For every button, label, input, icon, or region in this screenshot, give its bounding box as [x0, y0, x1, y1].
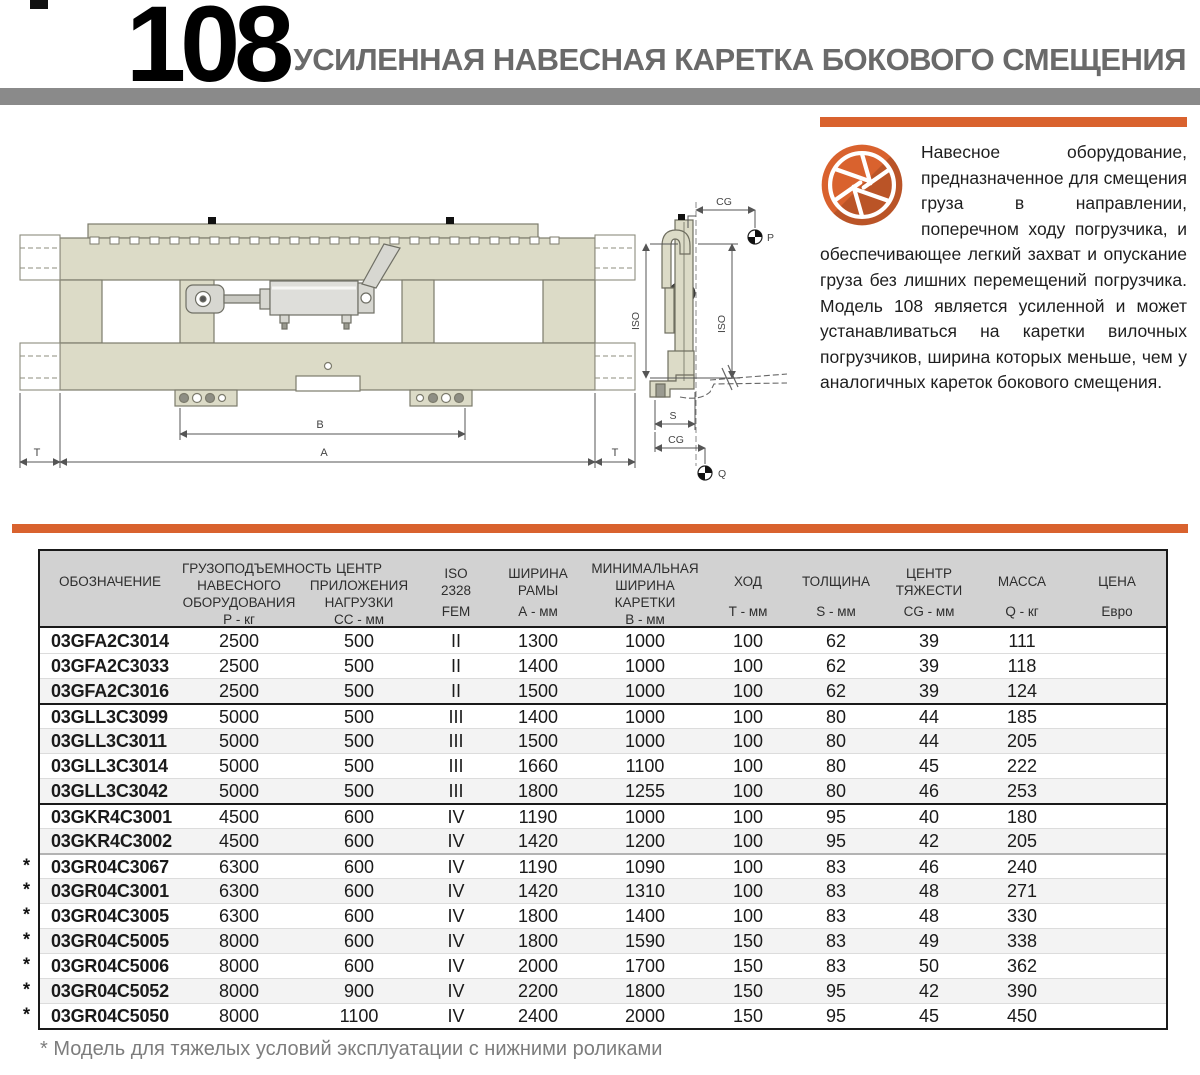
table-row: *03GR04C30676300600IV119010901008346240 — [40, 853, 1166, 878]
table-cell: III — [420, 729, 492, 753]
table-cell: III — [420, 754, 492, 778]
table-cell: 39 — [882, 654, 976, 678]
table-row: *03GR04C50528000900IV220018001509542390 — [40, 978, 1166, 1003]
table-row: *03GR04C50068000600IV200017001508350362 — [40, 953, 1166, 978]
table-cell: 45 — [882, 754, 976, 778]
dim-label-s: S — [669, 410, 676, 422]
page-number: 108 — [126, 0, 288, 98]
table-cell: 1190 — [492, 855, 584, 879]
table-cell: 100 — [706, 879, 790, 903]
cell-designation: 03GKR4C3001 — [40, 805, 180, 829]
table-cell: 150 — [706, 979, 790, 1003]
table-cell: 2400 — [492, 1004, 584, 1028]
table-cell: 49 — [882, 929, 976, 953]
table-cell: 271 — [976, 879, 1068, 903]
table-cell: 95 — [790, 829, 882, 853]
table-cell: 80 — [790, 729, 882, 753]
cell-designation: 03GR04C3001 — [40, 879, 180, 903]
table-cell: 100 — [706, 629, 790, 653]
side-view: CG ISO ISO S CG P Q — [630, 196, 787, 480]
cell-designation: 03GLL3C3011 — [40, 729, 180, 753]
column-header: ТОЛЩИНАS - мм — [790, 551, 882, 628]
table-cell: 39 — [882, 629, 976, 653]
table-row: 03GLL3C30995000500III140010001008044185 — [40, 703, 1166, 728]
footnote-text: Модель для тяжелых условий эксплуатации … — [53, 1038, 662, 1060]
table-cell: 2500 — [180, 679, 298, 703]
heavy-duty-star-marker: * — [23, 1005, 30, 1026]
column-header: ЦЕНАЕвро — [1068, 551, 1166, 628]
table-row: *03GR04C30016300600IV142013101008348271 — [40, 878, 1166, 903]
table-cell: 1310 — [584, 879, 706, 903]
column-header: ГРУЗОПОДЪЕМНОСТЬНАВЕСНОГО ОБОРУДОВАНИЯР … — [180, 551, 298, 628]
cell-designation: 03GLL3C3042 — [40, 779, 180, 803]
dim-label-iso-right: ISO — [716, 315, 728, 333]
table-row: 03GLL3C30425000500III180012551008046253 — [40, 778, 1166, 803]
header-divider-bar — [0, 88, 1200, 105]
table-cell: 1590 — [584, 929, 706, 953]
table-cell: 80 — [790, 754, 882, 778]
table-cell: 205 — [976, 829, 1068, 853]
intro-paragraph: Навесное оборудование, предназначенное д… — [820, 140, 1187, 396]
table-cell: II — [420, 679, 492, 703]
dim-label-cg-top: CG — [716, 196, 732, 208]
table-cell: 8000 — [180, 979, 298, 1003]
table-cell: 62 — [790, 679, 882, 703]
table-cell: 600 — [298, 954, 420, 978]
table-cell: 2500 — [180, 654, 298, 678]
intro-section: Навесное оборудование, предназначенное д… — [820, 117, 1187, 396]
cell-designation: 03GFA2C3016 — [40, 679, 180, 703]
table-cell: 1660 — [492, 754, 584, 778]
table-cell: IV — [420, 904, 492, 928]
heavy-duty-star-marker: * — [23, 855, 30, 876]
table-cell: II — [420, 629, 492, 653]
spec-table-body: 03GFA2C30142500500II13001000100623911103… — [40, 628, 1166, 1028]
table-cell: 150 — [706, 929, 790, 953]
cell-designation: 03GLL3C3014 — [40, 754, 180, 778]
table-cell: II — [420, 654, 492, 678]
table-cell: 83 — [790, 929, 882, 953]
cell-designation: 03GR04C5052 — [40, 979, 180, 1003]
table-cell: 1800 — [492, 929, 584, 953]
table-cell: 2200 — [492, 979, 584, 1003]
dim-label-cg-bottom: CG — [668, 434, 684, 446]
table-cell: 111 — [976, 629, 1068, 653]
table-cell: 100 — [706, 754, 790, 778]
table-row: 03GFA2C30162500500II150010001006239124 — [40, 678, 1166, 703]
table-cell: 8000 — [180, 954, 298, 978]
dim-label-b: B — [316, 419, 323, 431]
column-header: МИНИМАЛЬНАЯШИРИНА КАРЕТКИВ - мм — [584, 551, 706, 628]
table-cell: 4500 — [180, 805, 298, 829]
table-cell: 500 — [298, 729, 420, 753]
cell-designation: 03GR04C3005 — [40, 904, 180, 928]
table-cell: 2000 — [492, 954, 584, 978]
table-cell: 253 — [976, 779, 1068, 803]
table-row: 03GKR4C30024500600IV142012001009542205 — [40, 828, 1166, 853]
table-cell: 1400 — [492, 654, 584, 678]
table-cell: 338 — [976, 929, 1068, 953]
table-cell: 1090 — [584, 855, 706, 879]
table-cell: 1500 — [492, 679, 584, 703]
dim-label-a: A — [320, 447, 328, 459]
page-corner-mark — [30, 0, 48, 9]
table-cell: 6300 — [180, 879, 298, 903]
table-cell: IV — [420, 1004, 492, 1028]
table-cell: 500 — [298, 705, 420, 729]
table-cell: 1100 — [298, 1004, 420, 1028]
table-cell: 100 — [706, 729, 790, 753]
cell-designation: 03GKR4C3002 — [40, 829, 180, 853]
table-cell: 42 — [882, 829, 976, 853]
front-view: B A T T — [20, 217, 635, 468]
table-cell: 124 — [976, 679, 1068, 703]
heavy-duty-star-marker: * — [23, 905, 30, 926]
table-cell: III — [420, 779, 492, 803]
table-cell: 5000 — [180, 779, 298, 803]
table-cell: 118 — [976, 654, 1068, 678]
heavy-duty-star-marker: * — [23, 880, 30, 901]
dim-label-iso-left: ISO — [630, 312, 642, 330]
table-cell: 500 — [298, 754, 420, 778]
table-cell: 44 — [882, 705, 976, 729]
table-row: 03GLL3C30115000500III150010001008044205 — [40, 728, 1166, 753]
table-row: *03GR04C50058000600IV180015901508349338 — [40, 928, 1166, 953]
table-cell: 48 — [882, 904, 976, 928]
cell-designation: 03GFA2C3014 — [40, 629, 180, 653]
table-cell: 100 — [706, 904, 790, 928]
table-cell: 1000 — [584, 705, 706, 729]
cell-designation: 03GR04C5006 — [40, 954, 180, 978]
table-row: *03GR04C505080001100IV240020001509545450 — [40, 1003, 1166, 1028]
table-cell: 95 — [790, 1004, 882, 1028]
table-cell: 150 — [706, 1004, 790, 1028]
table-cell: 100 — [706, 829, 790, 853]
footnote-marker: * — [40, 1038, 48, 1060]
table-cell: IV — [420, 979, 492, 1003]
table-cell: 6300 — [180, 904, 298, 928]
table-cell: 46 — [882, 855, 976, 879]
table-cell: 1000 — [584, 654, 706, 678]
table-cell: 1000 — [584, 805, 706, 829]
table-cell: 46 — [882, 779, 976, 803]
table-row: 03GFA2C30332500500II140010001006239118 — [40, 653, 1166, 678]
spec-table: ОБОЗНАЧЕНИЕГРУЗОПОДЪЕМНОСТЬНАВЕСНОГО ОБО… — [38, 549, 1168, 1030]
cog-symbol-q — [698, 466, 712, 480]
point-label-q: Q — [718, 468, 726, 480]
table-cell: 390 — [976, 979, 1068, 1003]
table-cell: 500 — [298, 629, 420, 653]
table-cell: IV — [420, 879, 492, 903]
table-cell: 1200 — [584, 829, 706, 853]
cell-designation: 03GR04C3067 — [40, 855, 180, 879]
column-header: ЦЕНТРТЯЖЕСТИCG - мм — [882, 551, 976, 628]
table-cell: 83 — [790, 954, 882, 978]
table-cell: 100 — [706, 705, 790, 729]
cell-designation: 03GFA2C3033 — [40, 654, 180, 678]
table-cell: IV — [420, 855, 492, 879]
table-cell: 100 — [706, 654, 790, 678]
table-row: 03GKR4C30014500600IV119010001009540180 — [40, 803, 1166, 828]
section-divider-bar — [12, 524, 1188, 533]
table-cell: 1000 — [584, 679, 706, 703]
table-cell: 8000 — [180, 929, 298, 953]
table-cell: 450 — [976, 1004, 1068, 1028]
table-cell: 95 — [790, 805, 882, 829]
table-cell: 44 — [882, 729, 976, 753]
table-cell: 42 — [882, 979, 976, 1003]
table-cell: 900 — [298, 979, 420, 1003]
table-cell: 600 — [298, 829, 420, 853]
table-cell: 180 — [976, 805, 1068, 829]
table-cell: 1800 — [492, 904, 584, 928]
table-cell: 500 — [298, 654, 420, 678]
aperture-logo-icon — [820, 143, 904, 227]
table-cell: 500 — [298, 679, 420, 703]
column-header: ЦЕНТР ПРИЛОЖЕНИЯНАГРУЗКИСС - мм — [298, 551, 420, 628]
table-cell: 62 — [790, 629, 882, 653]
table-cell: 40 — [882, 805, 976, 829]
table-cell: 83 — [790, 855, 882, 879]
table-cell: 240 — [976, 855, 1068, 879]
table-cell: 6300 — [180, 855, 298, 879]
intro-accent-bar — [820, 117, 1187, 127]
table-cell: 5000 — [180, 754, 298, 778]
cell-designation: 03GLL3C3099 — [40, 705, 180, 729]
table-cell: 95 — [790, 979, 882, 1003]
table-cell: 600 — [298, 929, 420, 953]
table-cell: 600 — [298, 805, 420, 829]
spec-table-header: ОБОЗНАЧЕНИЕГРУЗОПОДЪЕМНОСТЬНАВЕСНОГО ОБО… — [40, 551, 1166, 628]
table-cell: 1000 — [584, 629, 706, 653]
table-cell: IV — [420, 954, 492, 978]
table-cell: 83 — [790, 904, 882, 928]
table-cell: 83 — [790, 879, 882, 903]
table-row: 03GFA2C30142500500II130010001006239111 — [40, 628, 1166, 653]
heavy-duty-star-marker: * — [23, 930, 30, 951]
table-cell: 1800 — [584, 979, 706, 1003]
cell-designation: 03GR04C5005 — [40, 929, 180, 953]
table-cell: 2500 — [180, 629, 298, 653]
table-row: 03GLL3C30145000500III166011001008045222 — [40, 753, 1166, 778]
table-cell: 5000 — [180, 729, 298, 753]
table-cell: 4500 — [180, 829, 298, 853]
table-cell: 1500 — [492, 729, 584, 753]
table-cell: 39 — [882, 679, 976, 703]
footnote: * Модель для тяжелых условий эксплуатаци… — [40, 1038, 662, 1061]
table-cell: 600 — [298, 855, 420, 879]
table-row: *03GR04C30056300600IV180014001008348330 — [40, 903, 1166, 928]
table-cell: 362 — [976, 954, 1068, 978]
table-cell: 48 — [882, 879, 976, 903]
table-cell: 80 — [790, 779, 882, 803]
table-cell: 1190 — [492, 805, 584, 829]
column-header: ХОДТ - мм — [706, 551, 790, 628]
heavy-duty-star-marker: * — [23, 980, 30, 1001]
table-cell: III — [420, 705, 492, 729]
table-cell: 205 — [976, 729, 1068, 753]
table-cell: 100 — [706, 805, 790, 829]
point-label-p: P — [767, 232, 774, 244]
dim-label-t-right: T — [612, 447, 619, 459]
column-header: МАССАQ - кг — [976, 551, 1068, 628]
technical-drawing: B A T T — [10, 188, 800, 498]
table-cell: 80 — [790, 705, 882, 729]
table-cell: 1420 — [492, 879, 584, 903]
page-title: УСИЛЕННАЯ НАВЕСНАЯ КАРЕТКА БОКОВОГО СМЕЩ… — [293, 42, 1186, 78]
table-cell: 1255 — [584, 779, 706, 803]
table-cell: 1100 — [584, 754, 706, 778]
table-cell: 100 — [706, 855, 790, 879]
column-header: ISO2328FEM — [420, 551, 492, 628]
table-cell: 1300 — [492, 629, 584, 653]
column-header: ОБОЗНАЧЕНИЕ — [40, 551, 180, 628]
table-cell: 600 — [298, 879, 420, 903]
table-cell: 8000 — [180, 1004, 298, 1028]
table-cell: 1400 — [584, 904, 706, 928]
table-cell: 1400 — [492, 705, 584, 729]
table-cell: IV — [420, 805, 492, 829]
table-cell: 330 — [976, 904, 1068, 928]
table-cell: 45 — [882, 1004, 976, 1028]
table-cell: 100 — [706, 679, 790, 703]
table-cell: 222 — [976, 754, 1068, 778]
table-cell: 600 — [298, 904, 420, 928]
table-cell: 62 — [790, 654, 882, 678]
table-cell: 50 — [882, 954, 976, 978]
column-header: ШИРИНАРАМЫА - мм — [492, 551, 584, 628]
dim-label-t-left: T — [34, 447, 41, 459]
table-cell: 1420 — [492, 829, 584, 853]
table-cell: 500 — [298, 779, 420, 803]
cell-designation: 03GR04C5050 — [40, 1004, 180, 1028]
table-cell: IV — [420, 929, 492, 953]
table-cell: IV — [420, 829, 492, 853]
table-cell: 1700 — [584, 954, 706, 978]
heavy-duty-star-marker: * — [23, 955, 30, 976]
cog-symbol-p — [748, 230, 762, 244]
table-cell: 1800 — [492, 779, 584, 803]
table-cell: 5000 — [180, 705, 298, 729]
table-cell: 185 — [976, 705, 1068, 729]
table-cell: 100 — [706, 779, 790, 803]
table-cell: 2000 — [584, 1004, 706, 1028]
table-cell: 150 — [706, 954, 790, 978]
table-cell: 1000 — [584, 729, 706, 753]
